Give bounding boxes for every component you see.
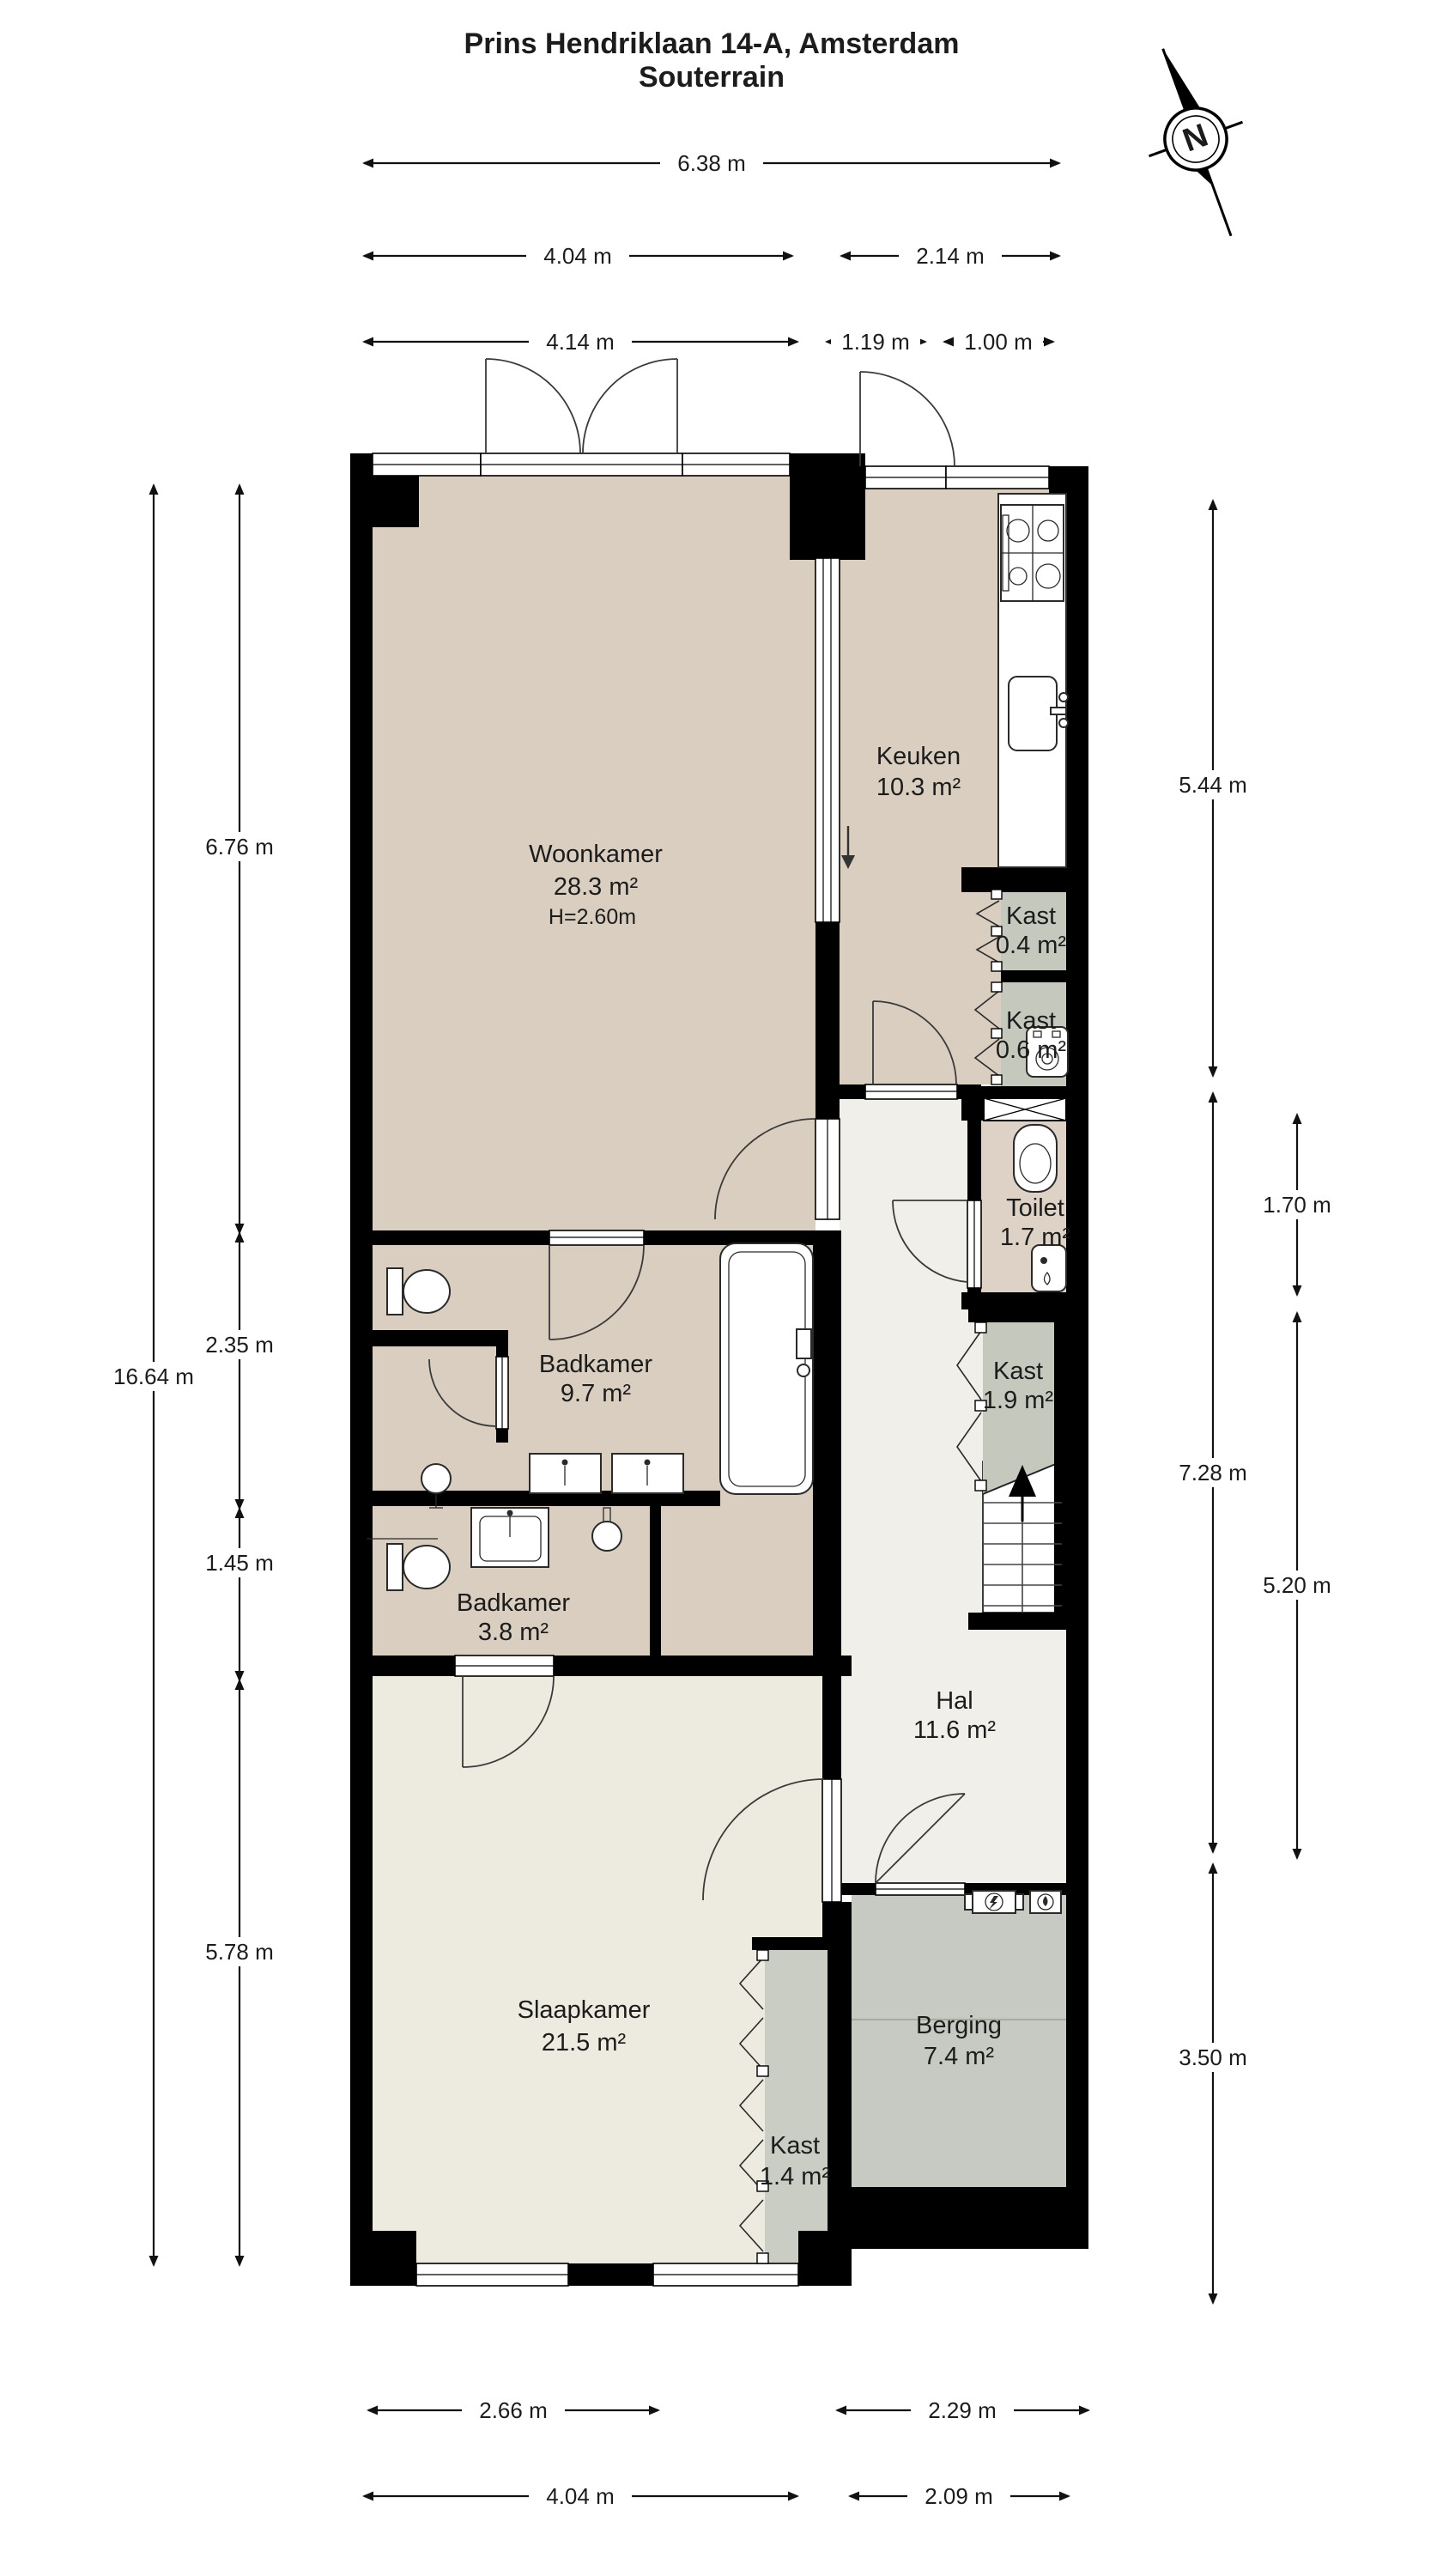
label-slaapkamer-area: 21.5 m²: [542, 2029, 627, 2057]
dim-bottom-left-a: 2.66 m: [479, 2397, 548, 2423]
floorplan-page: Prins Hendriklaan 14-A, Amsterdam Souter…: [0, 0, 1449, 2576]
dim-top-right-b: 1.00 m: [964, 329, 1033, 355]
label-kast06: Kast: [1006, 1007, 1056, 1035]
dim-right-1: 5.44 m: [1179, 772, 1247, 798]
dim-right-inner-2: 5.20 m: [1263, 1572, 1331, 1598]
dim-top-left-b: 4.14 m: [546, 329, 615, 355]
dim-left-1: 6.76 m: [205, 834, 274, 860]
label-kast04-area: 0.4 m²: [996, 932, 1067, 959]
label-toilet-area: 1.7 m²: [1000, 1224, 1071, 1251]
label-kast06-area: 0.6 m²: [996, 1036, 1067, 1064]
shaft-duct: [984, 1098, 1066, 1121]
bathroom97-toilet-icon: [387, 1268, 450, 1315]
dim-right-2: 7.28 m: [1179, 1460, 1247, 1485]
label-woonkamer: Woonkamer: [529, 841, 663, 868]
label-kast19-area: 1.9 m²: [983, 1387, 1054, 1414]
dim-left-3: 1.45 m: [205, 1550, 274, 1576]
room-kast14-floor: [765, 1950, 828, 2267]
dim-left-total: 16.64 m: [113, 1364, 194, 1389]
label-woonkamer-area: 28.3 m²: [554, 873, 639, 901]
electric-meter-icon: [965, 1891, 1023, 1913]
toilet-corner-sink-icon: [1032, 1245, 1066, 1291]
dim-bottom-right-a: 2.29 m: [928, 2397, 997, 2423]
label-slaapkamer: Slaapkamer: [518, 1996, 651, 2024]
label-keuken: Keuken: [876, 743, 961, 770]
dim-right-3: 3.50 m: [1179, 2044, 1247, 2070]
label-kast14: Kast: [770, 2132, 820, 2160]
label-badkamer97-area: 9.7 m²: [561, 1380, 632, 1407]
room-slaapkamer-floor: [373, 1676, 822, 2267]
label-kast04: Kast: [1006, 902, 1056, 930]
dim-top-right-a: 2.14 m: [916, 243, 985, 269]
label-keuken-area: 10.3 m²: [876, 774, 961, 801]
bathtub-icon: [720, 1243, 813, 1494]
label-kast19: Kast: [993, 1358, 1043, 1385]
label-badkamer38: Badkamer: [457, 1589, 571, 1617]
label-badkamer38-area: 3.8 m²: [478, 1619, 549, 1646]
water-meter-icon: [1030, 1891, 1061, 1913]
label-hal: Hal: [936, 1687, 973, 1715]
dim-left-2: 2.35 m: [205, 1332, 274, 1358]
page-title: Prins Hendriklaan 14-A, Amsterdam: [464, 27, 960, 60]
compass-north-icon: N: [1116, 32, 1277, 253]
dim-bottom-left-b: 4.04 m: [546, 2483, 615, 2509]
dim-right-inner-1: 1.70 m: [1263, 1192, 1331, 1218]
washbasin-cabinet-icon: [471, 1508, 549, 1567]
label-hal-area: 11.6 m²: [913, 1716, 997, 1744]
label-badkamer97: Badkamer: [539, 1351, 653, 1378]
dim-bottom-right-b: 2.09 m: [925, 2483, 993, 2509]
kitchen-counter: [998, 494, 1068, 867]
stove-icon: [1001, 505, 1064, 601]
page-subtitle: Souterrain: [639, 61, 785, 94]
dim-top-left-a: 4.04 m: [543, 243, 612, 269]
dim-left-4: 5.78 m: [205, 1939, 274, 1965]
room-badkamer97-passage: [661, 1506, 813, 1656]
dim-top-total: 6.38 m: [677, 150, 746, 176]
floor-plan-canvas: Prins Hendriklaan 14-A, Amsterdam Souter…: [0, 0, 1449, 2576]
room-berging-floor: [852, 1895, 1066, 2187]
label-berging: Berging: [916, 2012, 1002, 2039]
dim-top-mid-b: 1.19 m: [841, 329, 910, 355]
label-toilet: Toilet: [1006, 1194, 1064, 1222]
label-berging-area: 7.4 m²: [924, 2043, 995, 2070]
label-woonkamer-height: H=2.60m: [549, 905, 636, 929]
label-kast14-area: 1.4 m²: [760, 2163, 831, 2190]
toilet-icon: [1014, 1125, 1057, 1192]
